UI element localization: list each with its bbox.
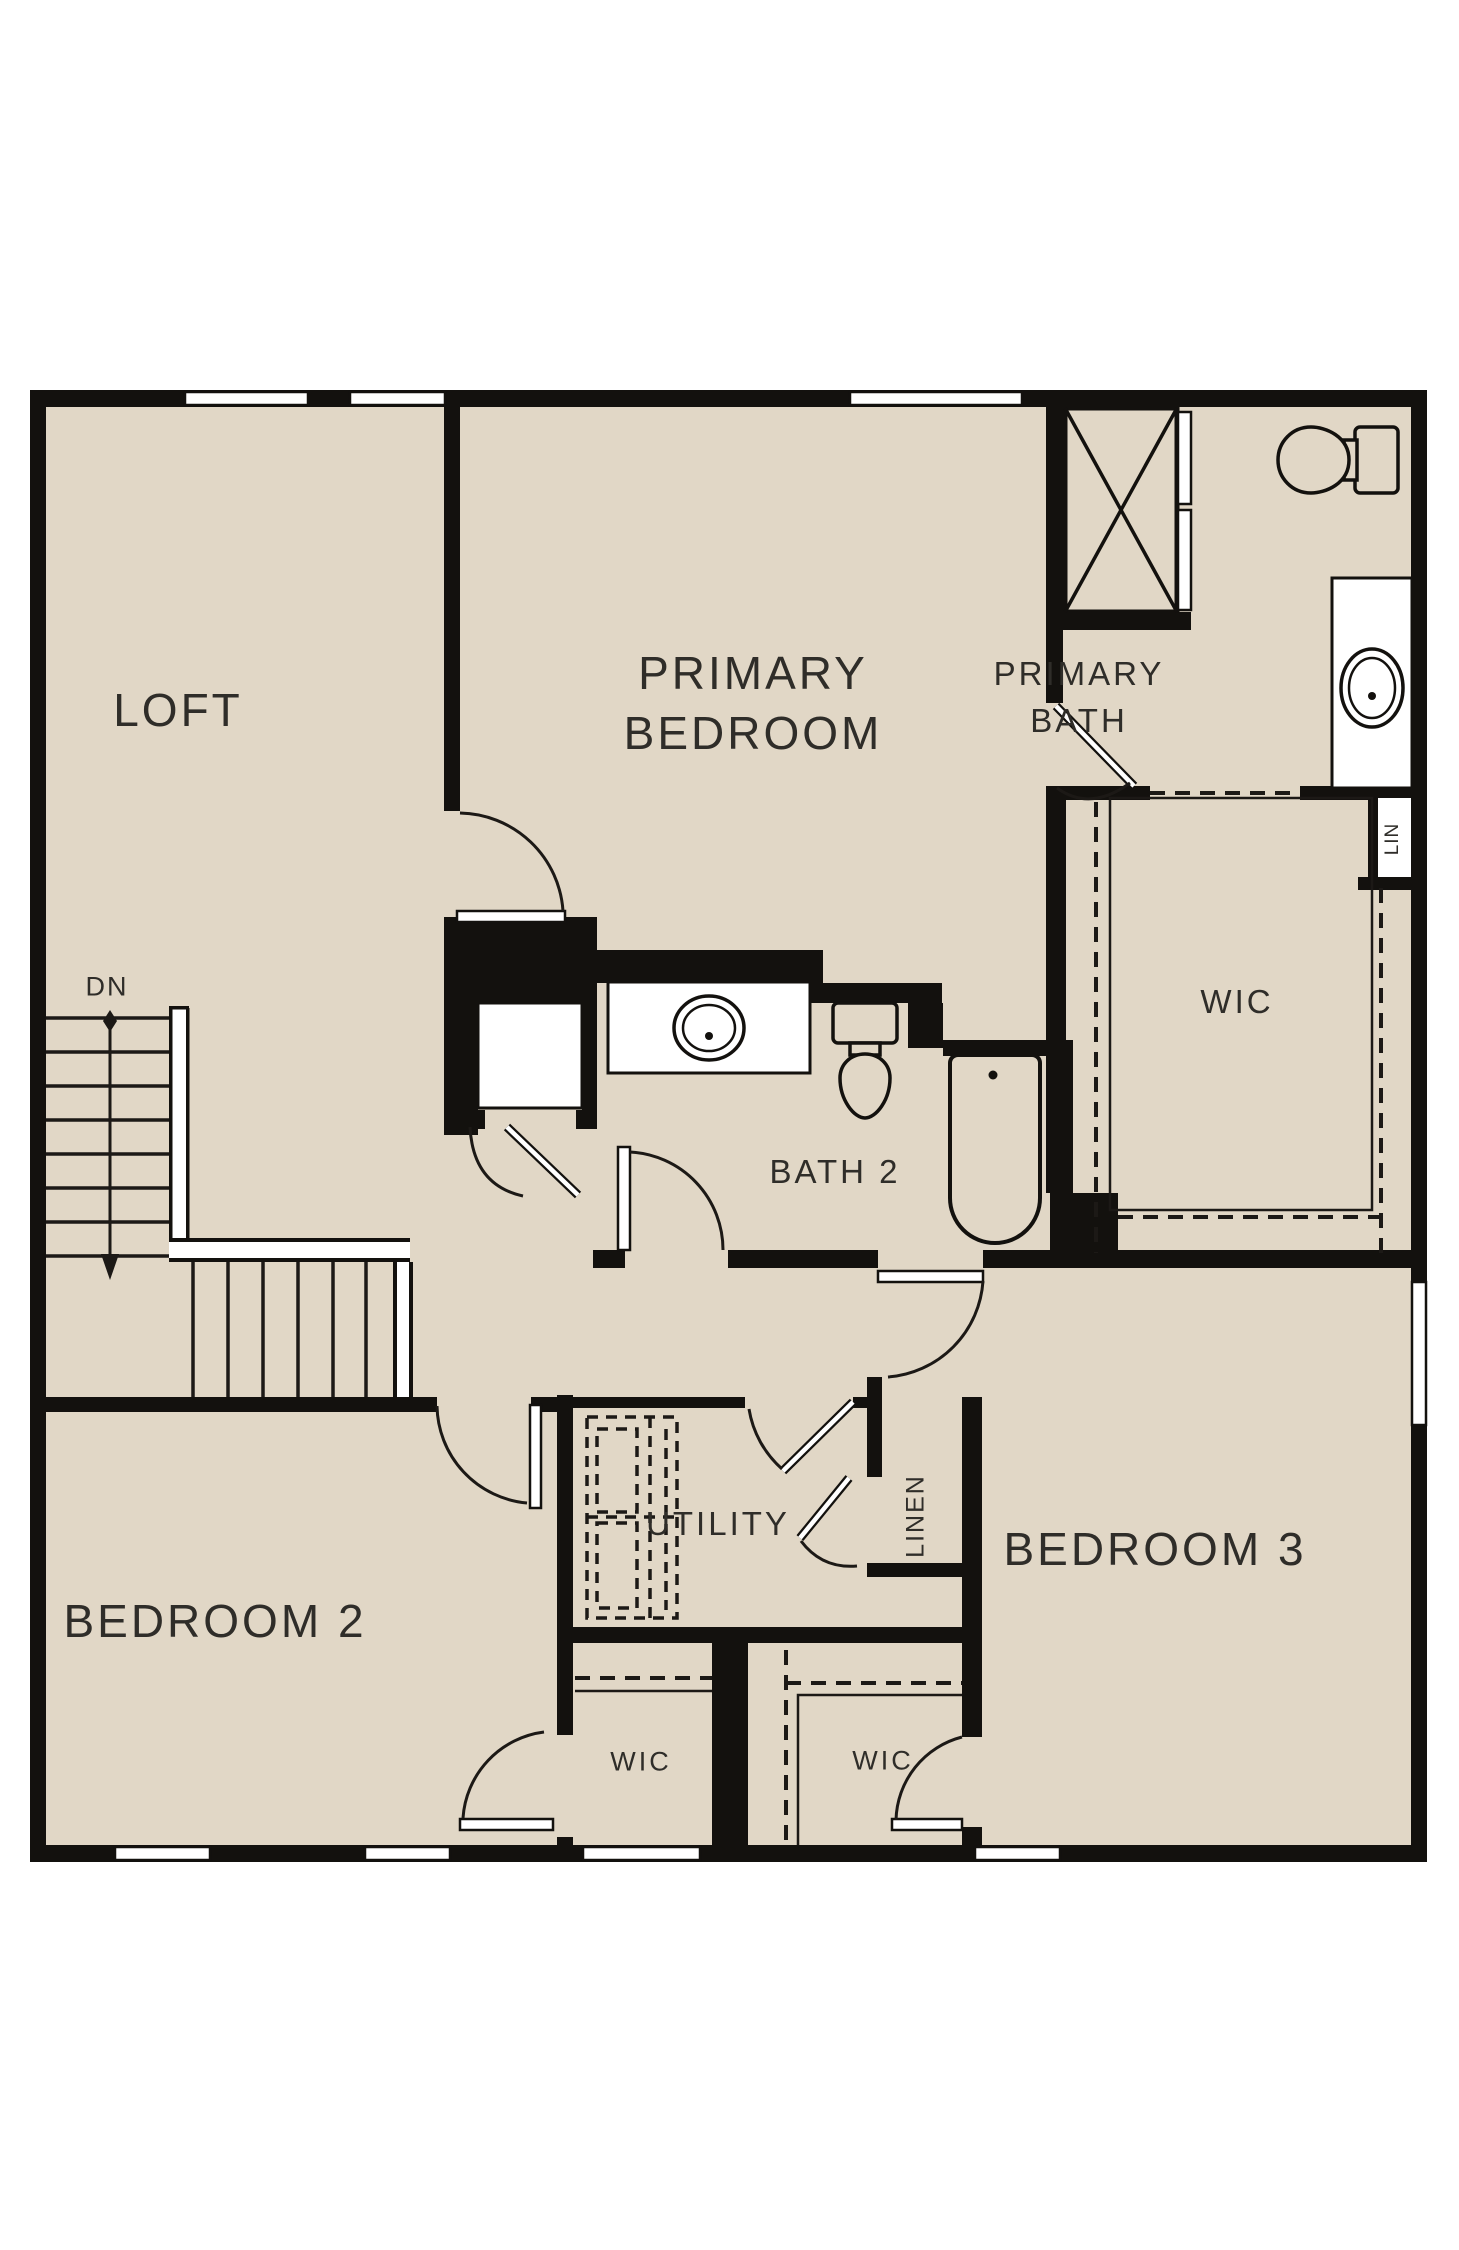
floor-plan-svg	[0, 0, 1459, 2250]
shower-icon	[478, 1003, 582, 1108]
label-primary-bath-line2: BATH	[994, 704, 1165, 737]
bathtub-icon	[950, 1055, 1040, 1243]
sink-icon	[1332, 578, 1412, 788]
label-primary-bedroom-line1: PRIMARY	[624, 650, 883, 696]
window-icon	[350, 392, 445, 405]
window-icon	[365, 1847, 450, 1860]
toilet-icon	[1278, 427, 1398, 493]
label-utility: UTILITY	[646, 1505, 790, 1543]
window-icon	[185, 392, 308, 405]
label-loft: LOFT	[113, 683, 243, 737]
window-icon	[975, 1847, 1060, 1860]
window-icon	[583, 1847, 700, 1860]
window-icon	[1412, 1282, 1426, 1425]
label-down: DN	[86, 972, 129, 1003]
label-lin: LIN	[1382, 823, 1404, 856]
label-bedroom3: BEDROOM 3	[1003, 1522, 1306, 1576]
label-primary-bedroom: PRIMARY BEDROOM	[624, 636, 883, 770]
label-wic-primary: WIC	[1200, 983, 1273, 1021]
label-primary-bath: PRIMARY BATH	[994, 643, 1165, 751]
label-bedroom2: BEDROOM 2	[63, 1594, 366, 1648]
shower-icon	[1065, 408, 1191, 612]
floor-plan-canvas: LOFT PRIMARY BEDROOM PRIMARY BATH WIC BA…	[0, 0, 1459, 2250]
label-wic-bedroom2: WIC	[610, 1747, 671, 1778]
label-primary-bath-line1: PRIMARY	[994, 657, 1165, 690]
label-bath2: BATH 2	[769, 1153, 900, 1191]
label-wic-bedroom3: WIC	[852, 1746, 913, 1777]
label-linen: LINEN	[902, 1474, 931, 1558]
window-icon	[850, 392, 1022, 405]
window-icon	[115, 1847, 210, 1860]
label-primary-bedroom-line2: BEDROOM	[624, 710, 883, 756]
sink-icon	[608, 982, 810, 1073]
